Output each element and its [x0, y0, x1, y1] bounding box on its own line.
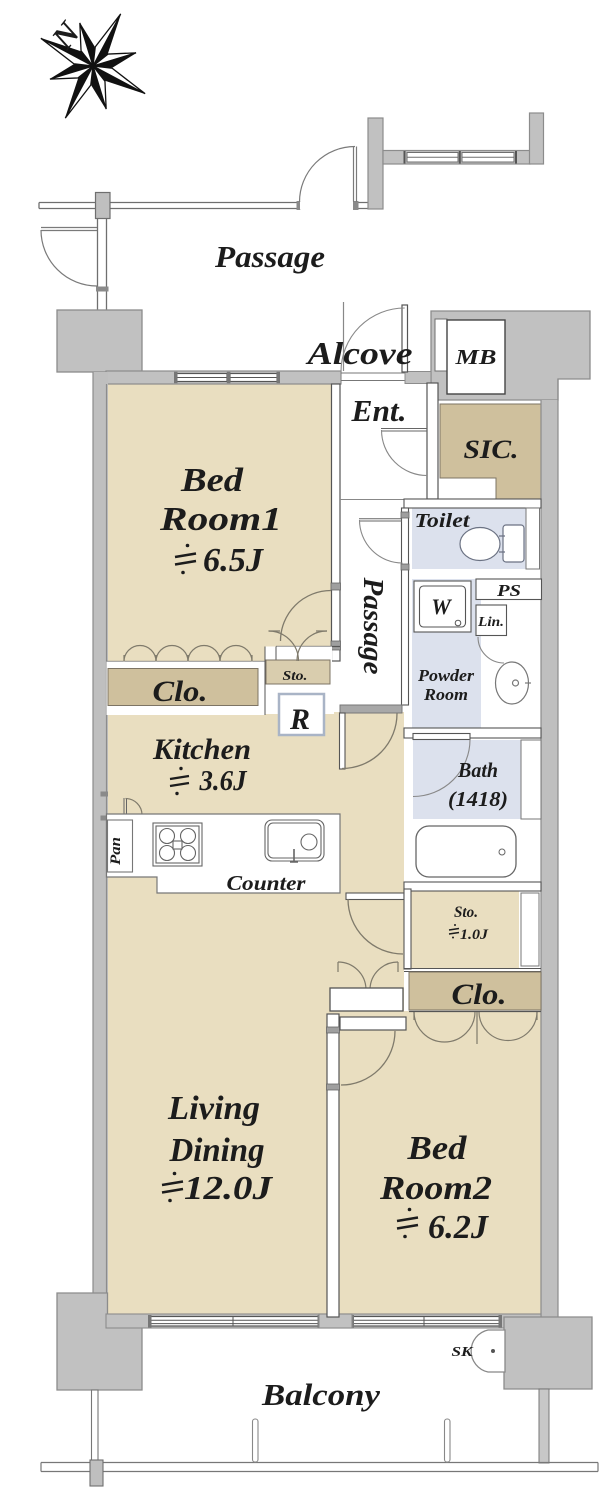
svg-text:6.2J: 6.2J: [428, 1209, 489, 1246]
svg-text:Kitchen: Kitchen: [152, 733, 251, 766]
svg-text:Room: Room: [423, 685, 468, 704]
svg-text:Alcove: Alcove: [305, 335, 412, 371]
svg-text:R: R: [289, 703, 310, 736]
svg-text:Ent.: Ent.: [350, 393, 406, 428]
svg-text:Sto.: Sto.: [454, 904, 478, 921]
svg-text:SIC.: SIC.: [464, 435, 519, 464]
svg-text:Powder: Powder: [417, 666, 474, 685]
svg-text:6.5J: 6.5J: [203, 542, 264, 579]
svg-text:Lin.: Lin.: [477, 615, 504, 630]
svg-text:W: W: [431, 594, 452, 619]
svg-text:PS: PS: [496, 581, 521, 600]
svg-text:Bed: Bed: [180, 462, 244, 499]
svg-text:Clo.: Clo.: [452, 978, 507, 1011]
svg-text:3.6J: 3.6J: [199, 765, 248, 797]
svg-text:12.0J: 12.0J: [184, 1170, 273, 1207]
svg-text:Clo.: Clo.: [153, 675, 208, 708]
svg-text:Pan: Pan: [108, 837, 124, 865]
svg-text:Room2: Room2: [379, 1170, 492, 1207]
svg-text:SK: SK: [452, 1345, 475, 1360]
svg-text:Toilet: Toilet: [415, 510, 472, 532]
svg-text:Living: Living: [167, 1090, 260, 1127]
svg-text:Counter: Counter: [227, 871, 307, 895]
svg-text:Passage: Passage: [214, 239, 325, 274]
svg-text:Sto.: Sto.: [283, 669, 308, 684]
svg-text:Bath: Bath: [457, 758, 498, 782]
svg-text:(1418): (1418): [448, 787, 508, 811]
svg-text:Passage: Passage: [357, 576, 388, 674]
svg-text:Room1: Room1: [159, 501, 282, 538]
svg-text:Balcony: Balcony: [261, 1377, 380, 1412]
svg-text:Bed: Bed: [406, 1130, 467, 1167]
svg-text:MB: MB: [454, 345, 496, 369]
svg-text:Dining: Dining: [169, 1132, 265, 1169]
svg-text:1.0J: 1.0J: [460, 927, 489, 943]
